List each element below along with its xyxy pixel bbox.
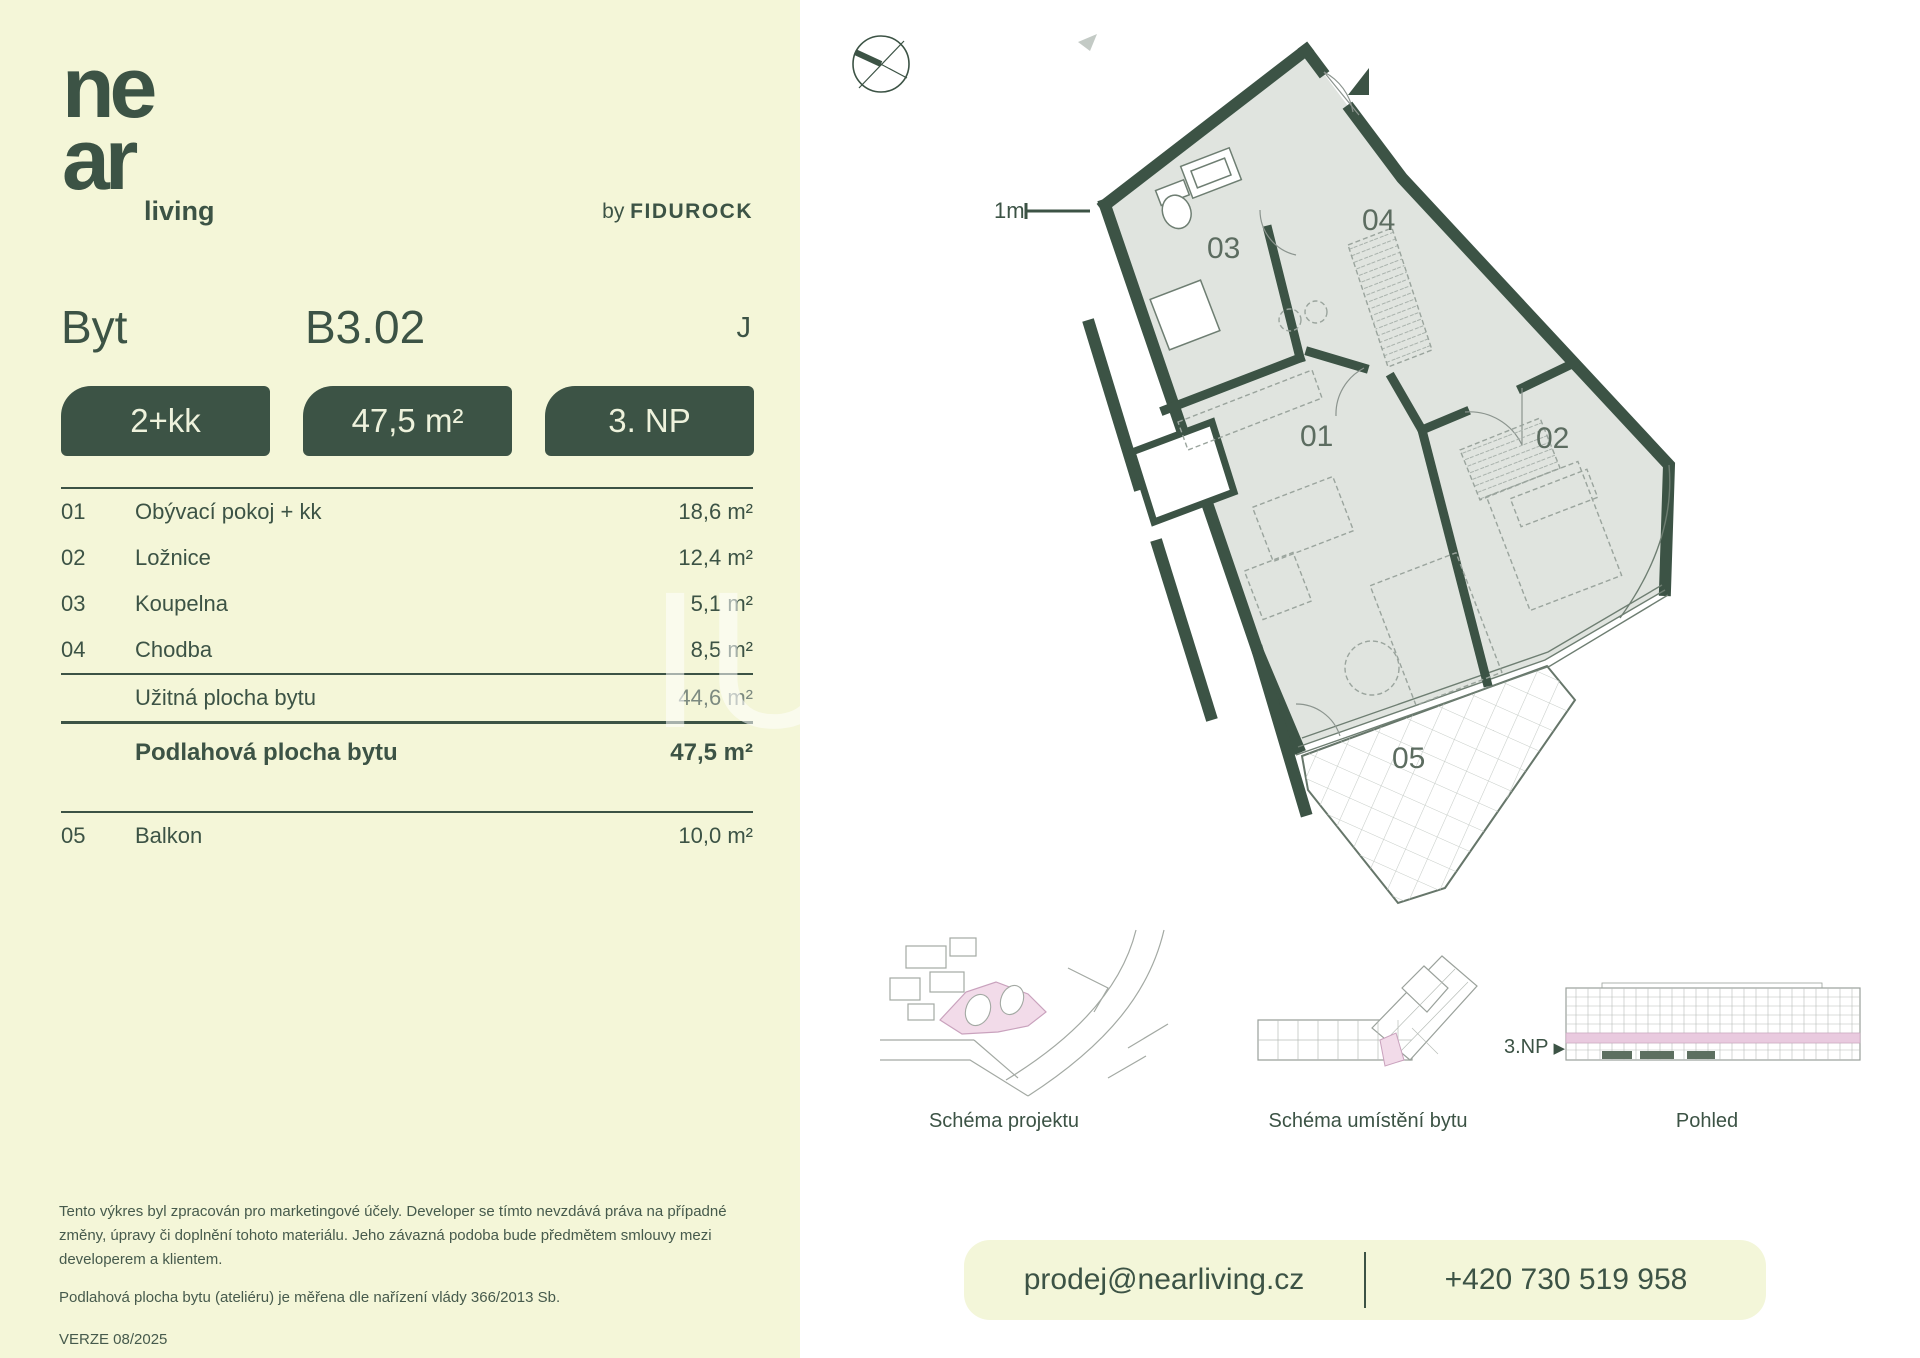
badge-disposition: 2+kk bbox=[61, 386, 270, 456]
room-name: Balkon bbox=[135, 823, 678, 849]
plan-label-03: 03 bbox=[1207, 232, 1240, 265]
caption-floor-plate: Schéma umístění bytu bbox=[1269, 1110, 1468, 1133]
room-name: Ložnice bbox=[135, 545, 678, 571]
disclaimer-1: Tento výkres byl zpracován pro marketing… bbox=[59, 1200, 759, 1272]
room-number: 03 bbox=[61, 591, 135, 617]
room-area: 8,5 m² bbox=[691, 637, 753, 663]
table-row: 04 Chodba 8,5 m² bbox=[61, 627, 753, 673]
plan-label-05: 05 bbox=[1392, 742, 1425, 775]
caption-site-plan: Schéma projektu bbox=[929, 1110, 1079, 1133]
room-area: 5,1 m² bbox=[691, 591, 753, 617]
near-living-logo: ne ar bbox=[62, 52, 152, 196]
contact-email[interactable]: prodej@nearliving.cz bbox=[964, 1263, 1364, 1297]
elevation-schematic bbox=[1562, 978, 1867, 1083]
floor-area-label: Podlahová plocha bytu bbox=[135, 739, 670, 767]
room-name: Koupelna bbox=[135, 591, 691, 617]
unit-type-label: Byt bbox=[61, 300, 127, 354]
version-label: VERZE 08/2025 bbox=[59, 1328, 759, 1352]
contact-bar: prodej@nearliving.cz +420 730 519 958 bbox=[964, 1240, 1766, 1320]
plan-marker-icon bbox=[1078, 34, 1097, 51]
room-number: 01 bbox=[61, 499, 135, 525]
unit-number: B3.02 bbox=[305, 300, 425, 354]
entry-marker-icon bbox=[1348, 68, 1369, 95]
table-row: 02 Ložnice 12,4 m² bbox=[61, 535, 753, 581]
logo-living-label: living bbox=[144, 196, 215, 227]
floor-area-row: Podlahová plocha bytu 47,5 m² bbox=[61, 721, 753, 782]
layout-letter: J bbox=[737, 312, 752, 345]
info-panel: ne ar living by FIDUROCK Byt B3.02 J 2+k… bbox=[0, 0, 800, 1358]
scale-label: 1m bbox=[994, 198, 1025, 223]
floor-plan: 1m bbox=[960, 20, 1720, 920]
byline-prefix: by bbox=[602, 200, 624, 223]
floor-area-value: 47,5 m² bbox=[670, 739, 753, 767]
plan-label-01: 01 bbox=[1300, 420, 1333, 453]
usable-area-label: Užitná plocha bytu bbox=[135, 685, 678, 711]
contact-phone[interactable]: +420 730 519 958 bbox=[1366, 1263, 1766, 1297]
badges-row: 2+kk 47,5 m² 3. NP bbox=[61, 386, 754, 456]
byline-brand: FIDUROCK bbox=[630, 200, 753, 223]
badge-floor: 3. NP bbox=[545, 386, 754, 456]
elevation-floor-highlight bbox=[1566, 1033, 1860, 1043]
floor-indicator-label: 3.NP bbox=[1504, 1036, 1548, 1059]
plan-label-02: 02 bbox=[1536, 422, 1569, 455]
room-area: 10,0 m² bbox=[678, 823, 753, 849]
room-area: 12,4 m² bbox=[678, 545, 753, 571]
room-area: 18,6 m² bbox=[678, 499, 753, 525]
compass-icon bbox=[849, 22, 915, 108]
plan-label-04: 04 bbox=[1362, 204, 1395, 237]
table-row: 03 Koupelna 5,1 m² bbox=[61, 581, 753, 627]
room-name: Obývací pokoj + kk bbox=[135, 499, 678, 525]
room-number: 02 bbox=[61, 545, 135, 571]
usable-area-row: Užitná plocha bytu 44,6 m² bbox=[61, 673, 753, 721]
site-plan-schematic bbox=[878, 928, 1203, 1108]
byline: by FIDUROCK bbox=[602, 200, 753, 224]
site-highlight bbox=[940, 982, 1046, 1034]
room-table: 01 Obývací pokoj + kk 18,6 m² 02 Ložnice… bbox=[61, 487, 753, 782]
unit-title-row: Byt B3.02 J bbox=[61, 300, 753, 356]
flat-datasheet-page: ne ar living by FIDUROCK Byt B3.02 J 2+k… bbox=[0, 0, 1920, 1358]
caption-elevation: Pohled bbox=[1676, 1110, 1738, 1133]
usable-area-value: 44,6 m² bbox=[678, 685, 753, 711]
badge-area: 47,5 m² bbox=[303, 386, 512, 456]
legal-footer: Tento výkres byl zpracován pro marketing… bbox=[59, 1200, 759, 1358]
table-row: 01 Obývací pokoj + kk 18,6 m² bbox=[61, 489, 753, 535]
room-name: Chodba bbox=[135, 637, 691, 663]
room-number: 05 bbox=[61, 823, 135, 849]
room-number: 04 bbox=[61, 637, 135, 663]
table-row: 05 Balkon 10,0 m² bbox=[61, 813, 753, 859]
floor-plate-schematic bbox=[1252, 948, 1512, 1098]
balcony-row-block: 05 Balkon 10,0 m² bbox=[61, 811, 753, 859]
disclaimer-2: Podlahová plocha bytu (ateliéru) je měře… bbox=[59, 1286, 759, 1310]
floor-indicator: 3.NP ▶ bbox=[1504, 1036, 1565, 1059]
